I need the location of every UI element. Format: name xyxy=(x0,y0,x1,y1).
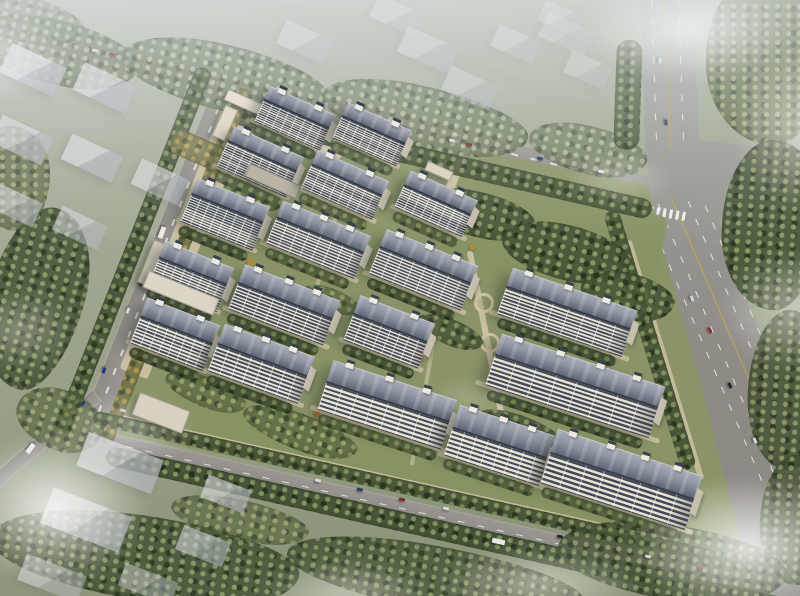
fog-patch xyxy=(0,0,100,122)
fog-patch xyxy=(390,529,690,596)
aerial-rendering-canvas xyxy=(0,0,800,596)
fog-patch xyxy=(685,225,800,395)
fog-patch xyxy=(538,0,800,103)
fog-patch xyxy=(705,13,800,243)
fog-patch xyxy=(540,140,700,220)
fog-patch xyxy=(220,547,470,596)
fog-patch xyxy=(33,378,223,478)
fog-patch xyxy=(0,270,100,390)
fog-patch xyxy=(0,403,187,596)
